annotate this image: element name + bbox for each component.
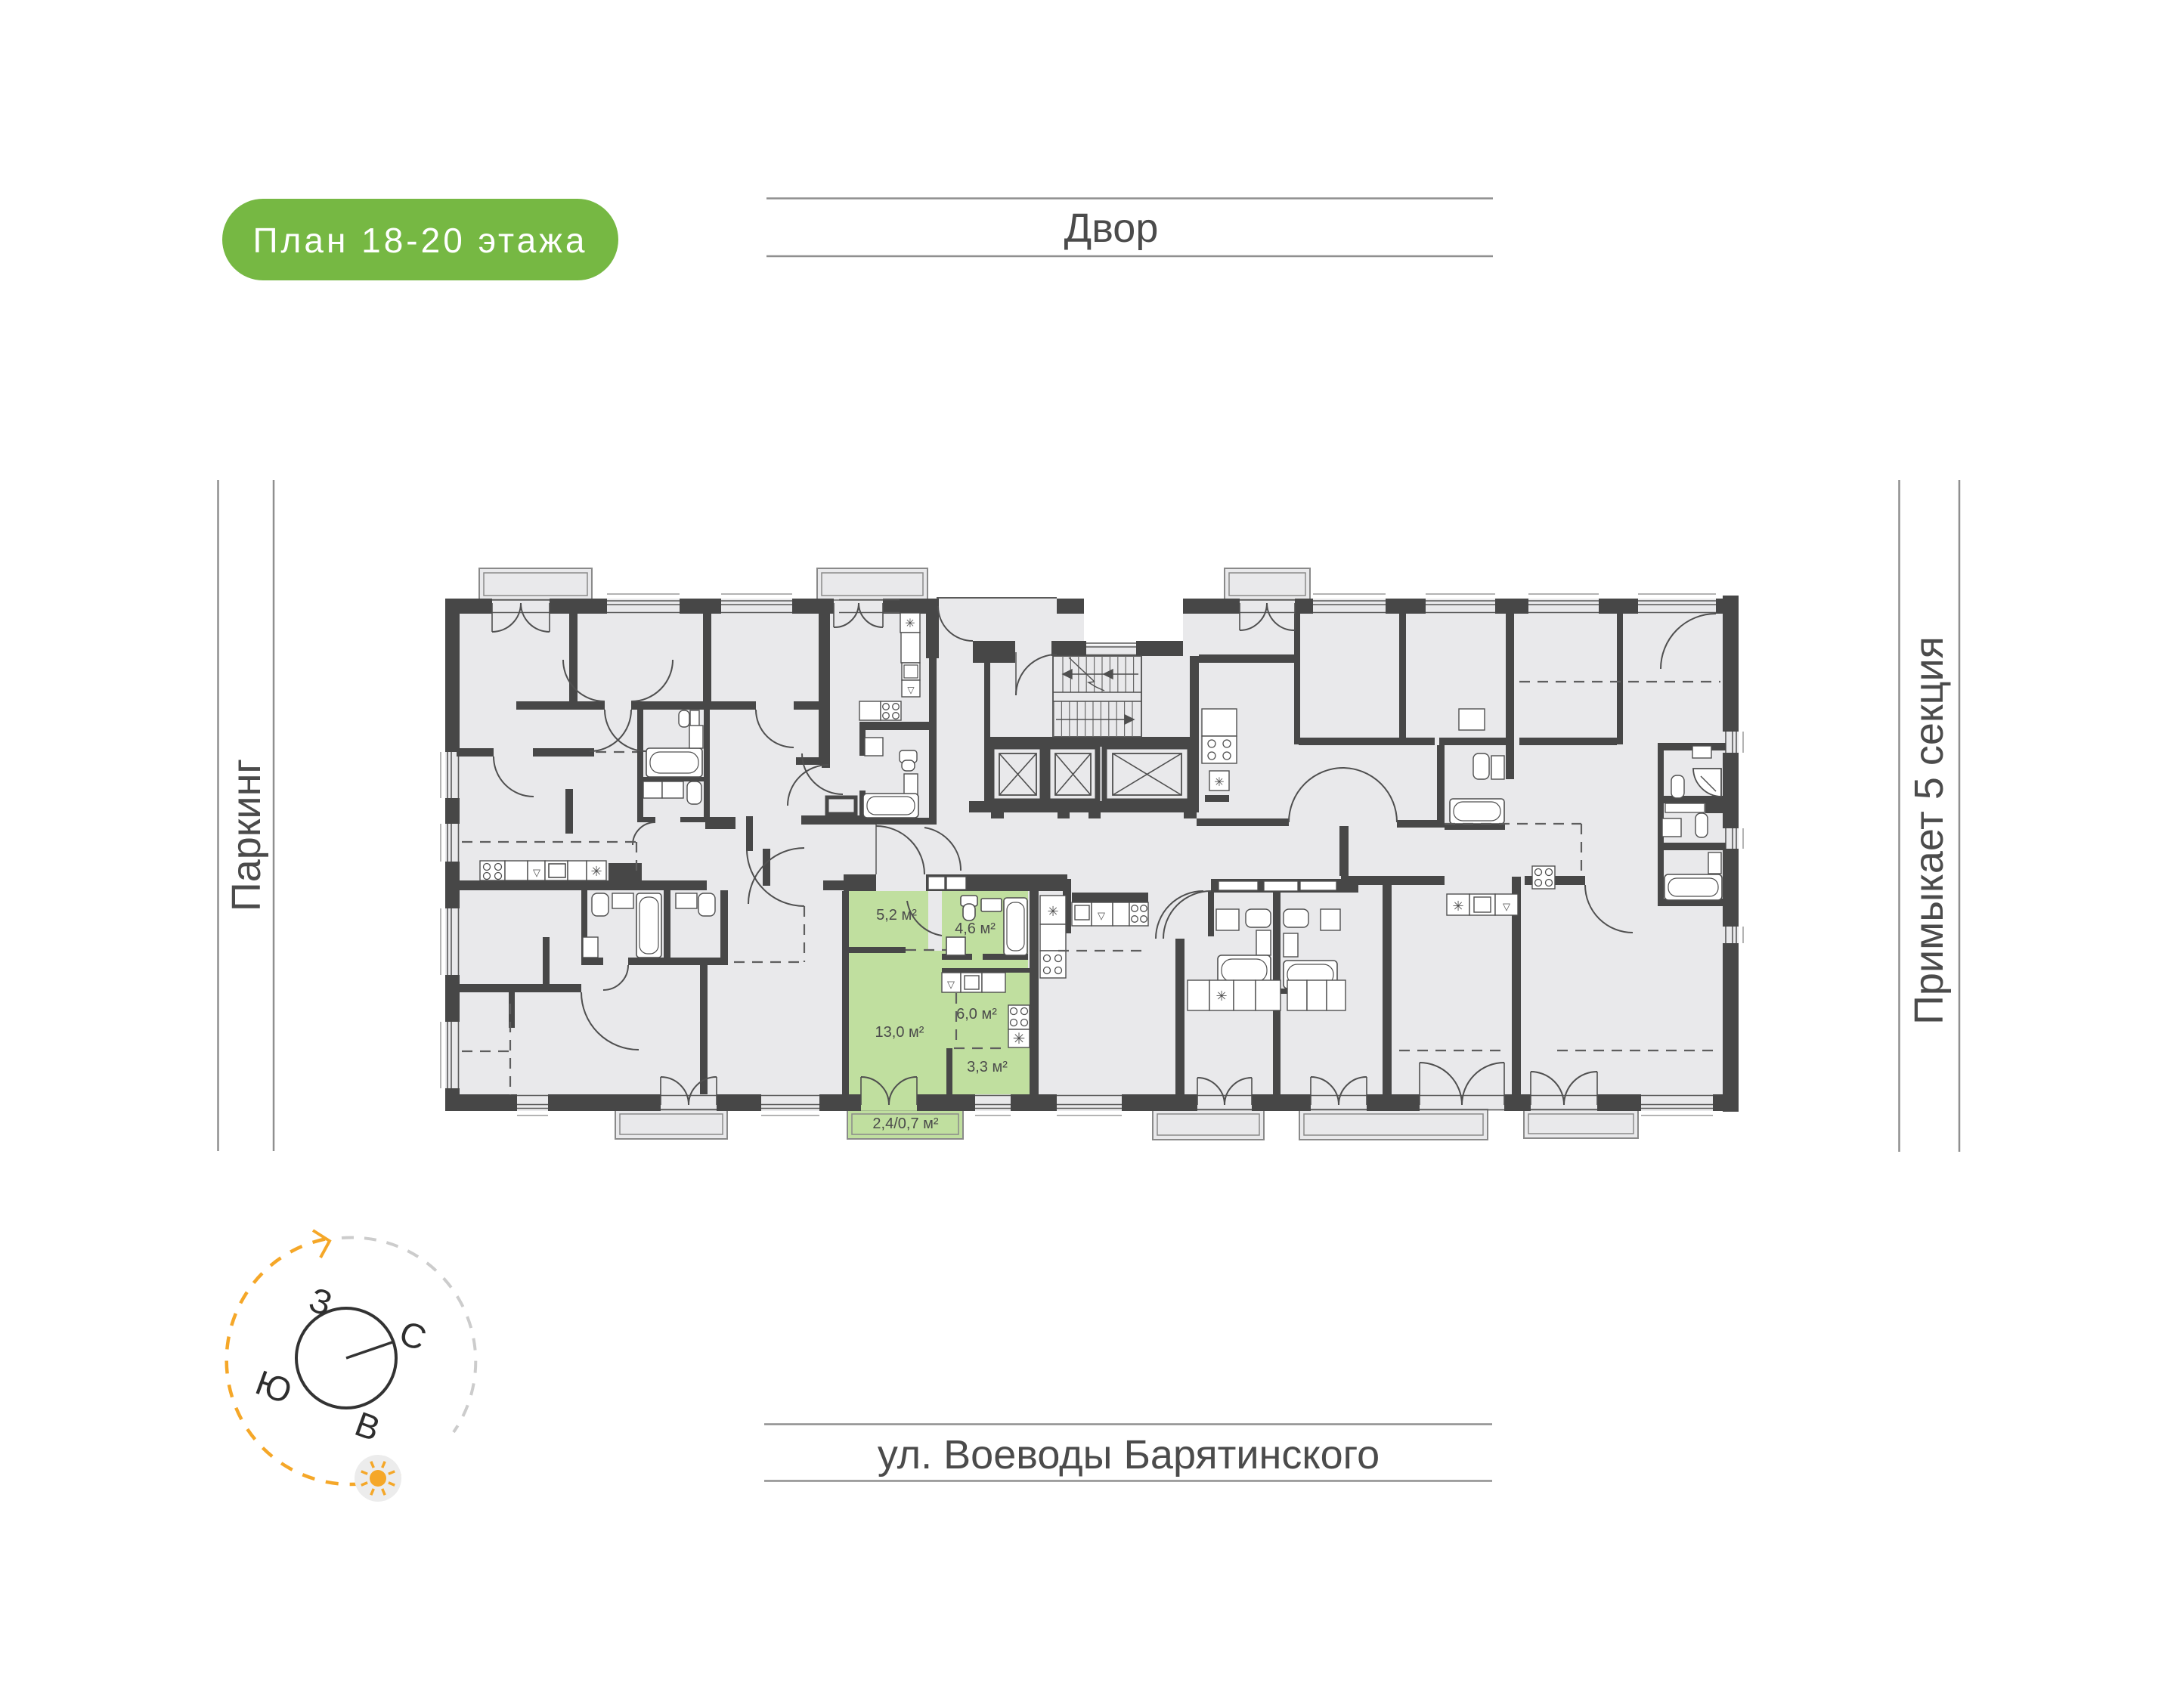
svg-text:▽: ▽ [1098, 910, 1105, 921]
svg-text:▽: ▽ [533, 867, 540, 878]
svg-text:✳: ✳ [1013, 1031, 1026, 1047]
svg-text:✳: ✳ [590, 864, 602, 879]
svg-text:✳: ✳ [1452, 899, 1463, 914]
svg-text:3,3 м²: 3,3 м² [967, 1059, 1008, 1075]
svg-text:✳: ✳ [1215, 989, 1227, 1004]
svg-text:6,0 м²: 6,0 м² [956, 1006, 997, 1023]
svg-text:Двор: Двор [1064, 206, 1159, 251]
svg-text:В: В [350, 1403, 386, 1448]
svg-text:2,4/0,7 м²: 2,4/0,7 м² [872, 1115, 938, 1132]
svg-text:План 18-20 этажа: План 18-20 этажа [252, 221, 587, 260]
svg-text:Примыкает 5 секция: Примыкает 5 секция [1906, 636, 1952, 1025]
svg-text:С: С [395, 1313, 432, 1358]
svg-text:Паркинг: Паркинг [224, 759, 269, 911]
svg-text:ул. Воеводы Барятинского: ул. Воеводы Барятинского [878, 1432, 1380, 1477]
svg-text:▽: ▽ [1503, 901, 1510, 912]
svg-text:▽: ▽ [947, 979, 955, 990]
svg-text:Ю: Ю [251, 1363, 297, 1412]
svg-text:4,6 м²: 4,6 м² [955, 921, 996, 937]
svg-text:✳: ✳ [1214, 776, 1224, 789]
svg-text:✳: ✳ [905, 617, 915, 630]
svg-text:▽: ▽ [907, 685, 915, 695]
svg-text:5,2 м²: 5,2 м² [876, 907, 917, 924]
svg-text:✳: ✳ [1047, 904, 1058, 919]
svg-text:13,0 м²: 13,0 м² [875, 1024, 924, 1041]
